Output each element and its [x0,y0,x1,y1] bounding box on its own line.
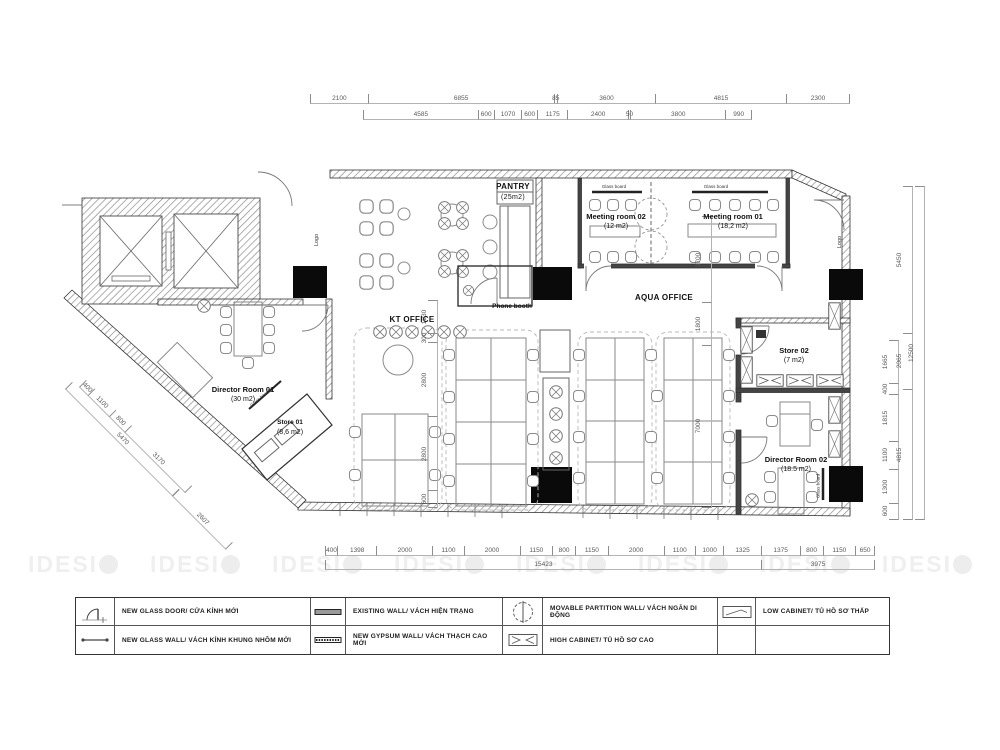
legend-symbol-cell-empty [718,626,756,654]
label-glass-board-m2: Glass board [602,184,626,189]
legend-symbol-cell [76,626,115,654]
existing-wall-icon [314,605,342,619]
dim-segment: 2800 [428,342,438,416]
legend-label: NEW GLASS WALL/ VÁCH KÍNH KHUNG NHÔM MỚI [115,626,311,654]
dim-bottom-row-2: 154233975 [325,560,875,570]
dim-segment: 400 [325,546,337,556]
legend-label: EXISTING WALL/ VÁCH HIỆN TRẠNG [346,598,503,626]
wall-meeting-right [786,178,790,268]
dim-segment: 3600 [557,94,655,104]
phone-booth [458,266,532,306]
dim-segment: 990 [725,110,752,120]
door-arc-entrance-left [258,172,292,206]
legend-table: NEW GLASS DOOR/ CỬA KÍNH MỚI EXISTING WA… [75,597,890,655]
dim-segment: 1150 [823,546,856,556]
dim-segment: 300 [428,333,438,342]
dim-segment: 1100 [432,546,463,556]
dim-segment: 4585 [363,110,478,120]
dim-segment: 800 [800,546,823,556]
movable-partition-icon [510,600,536,624]
door-arc-meeting2 [586,266,611,291]
wall-store2-bottom [736,388,850,393]
dim-segment: 2100 [310,94,368,104]
dim-segment: 1815 [889,394,899,441]
door-arc-meeting1 [757,266,782,291]
dim-segment: 1800 [702,302,712,344]
dim-segment: 5450 [903,186,913,333]
dim-segment: 1300 [889,469,899,503]
wall-dr2-left [736,430,741,514]
pantry-tables [439,202,497,279]
dim-segment: 3800 [630,110,725,120]
label-phone-booth: Phone booth [492,303,532,312]
dim-segment: 650 [855,546,875,556]
legend-label: NEW GLASS DOOR/ CỬA KÍNH MỚI [115,598,311,626]
label-logo-right: Logo [837,236,843,248]
lounge-seating [360,200,410,289]
wall-pantry-right [536,178,542,270]
dim-segment: 6855 [368,94,554,104]
dim-segment: 1150 [520,546,553,556]
label-glass-board-right: Glass board [816,474,821,498]
dim-segment: 3975 [761,560,875,570]
legend-symbol-cell [503,626,543,654]
label-dr2: Director Room 02 (18.5 m2) [765,455,828,475]
door-arc-phone-booth [471,278,497,304]
dim-segment: 15423 [325,560,761,570]
dim-segment: 1325 [723,546,760,556]
dim-interior-left: 123030028002800600 [428,300,438,508]
print-station [540,330,570,470]
legend-label: LOW CABINET/ TỦ HỒ SƠ THẤP [756,598,889,626]
dim-segment: 600 [521,110,537,120]
dim-segment: 2000 [376,546,432,556]
dim-interior-right: 370018007000 [702,216,712,508]
wall-top-right [792,170,846,202]
legend-symbol-cell [503,598,543,626]
glass-wall-icon [80,634,110,646]
label-meeting1: Meeting room 01 (18,2 m2) [703,212,763,232]
dim-segment: 1070 [494,110,522,120]
dim-segment: 2300 [786,94,850,104]
dim-right-total: 12500 [915,186,925,520]
legend-symbol-cell [76,598,115,626]
column [533,267,572,300]
column [829,269,863,300]
door-arc-dr2 [741,437,767,463]
legend-label: NEW GYPSUM WALL/ VÁCH THẠCH CAO MỚI [346,626,503,654]
dim-segment: 1150 [575,546,608,556]
label-glass-board-m1: Glass board [704,184,728,189]
wall-meeting-left [578,178,582,268]
floor-plan-sheet: IDESIIDESIIDESIIDESIIDESIIDESIIDESIIDESI [0,0,1000,750]
label-pantry: PANTRY (25m2) [496,182,530,202]
dim-segment: 2400 [567,110,628,120]
dim-segment: 4815 [655,94,786,104]
dim-segment: 12500 [915,186,925,520]
legend-symbol-cell [311,598,346,626]
dim-segment: 2800 [428,416,438,490]
column [293,266,327,298]
dim-segment: 2000 [608,546,664,556]
dim-top-row-1: 2100685585360048152300 [310,94,850,104]
wall-dr1-top [158,299,303,305]
label-store2: Store 02 (7 m2) [779,346,809,366]
dim-segment: 1398 [337,546,376,556]
high-cabinet-icon [508,632,538,648]
dim-segment: 800 [552,546,575,556]
dim-segment: 1375 [761,546,800,556]
label-kt-office: KT OFFICE [390,315,435,326]
door-arc-dr1 [302,305,328,331]
legend-label-empty [756,626,889,654]
column [829,466,863,502]
dim-segment: 400 [889,383,899,394]
dim-segment: 600 [889,503,899,520]
legend-symbol-cell [311,626,346,654]
wall-top [330,170,792,178]
label-logo-left: Logo [314,234,320,246]
label-aqua-office: AQUA OFFICE [635,293,693,304]
door-arc-entrance-right [814,200,844,230]
dim-segment: 7000 [702,345,712,508]
wall-bottom [298,502,850,516]
dim-segment: 600 [428,490,438,508]
legend-label: MOVABLE PARTITION WALL/ VÁCH NGĂN DI ĐỘN… [543,598,718,626]
dim-segment: 600 [478,110,494,120]
label-store1: Store 01 (8,6 m2) [277,419,303,437]
gypsum-wall-icon [314,633,342,647]
dim-segment: 2000 [464,546,520,556]
dim-segment: 1175 [537,110,567,120]
kt-office-furniture [350,326,539,506]
dim-segment: 4815 [903,389,913,520]
dim-top-row-2: 4585600107060011752400503800990 [363,110,752,120]
glass-door-icon [80,601,110,623]
dim-bottom-row-1: 4001398200011002000115080011502000110010… [325,546,875,556]
dim-segment: 1100 [664,546,695,556]
label-meeting2: Meeting room 02 (12 m2) [586,212,646,232]
low-cabinet-icon [722,604,752,620]
dim-segment: 1000 [695,546,723,556]
legend-symbol-cell [718,598,756,626]
legend-label: HIGH CABINET/ TỦ HỒ SƠ CAO [543,626,718,654]
